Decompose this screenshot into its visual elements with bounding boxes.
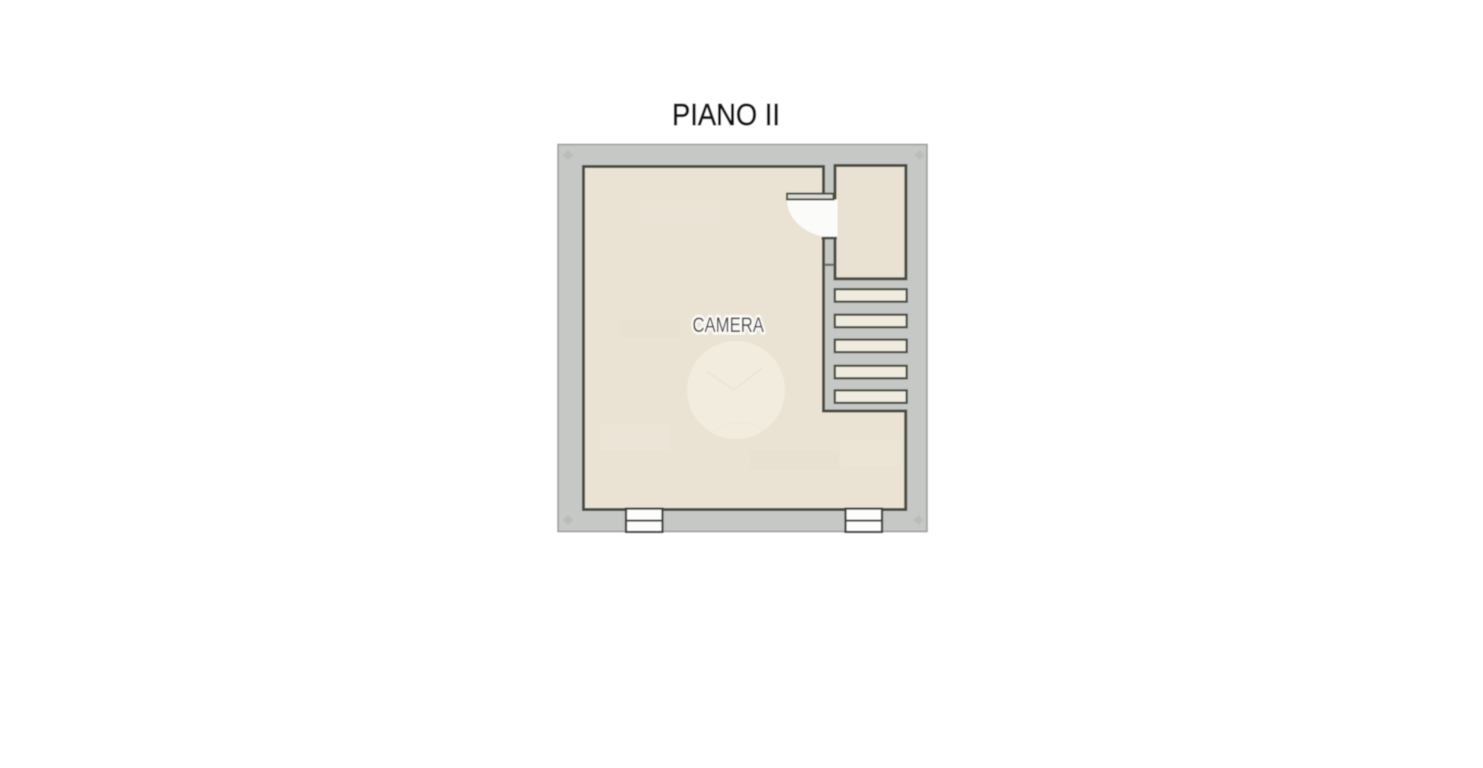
svg-text:PIANO II: PIANO II bbox=[672, 97, 780, 132]
svg-text:CAMERA: CAMERA bbox=[692, 313, 764, 337]
